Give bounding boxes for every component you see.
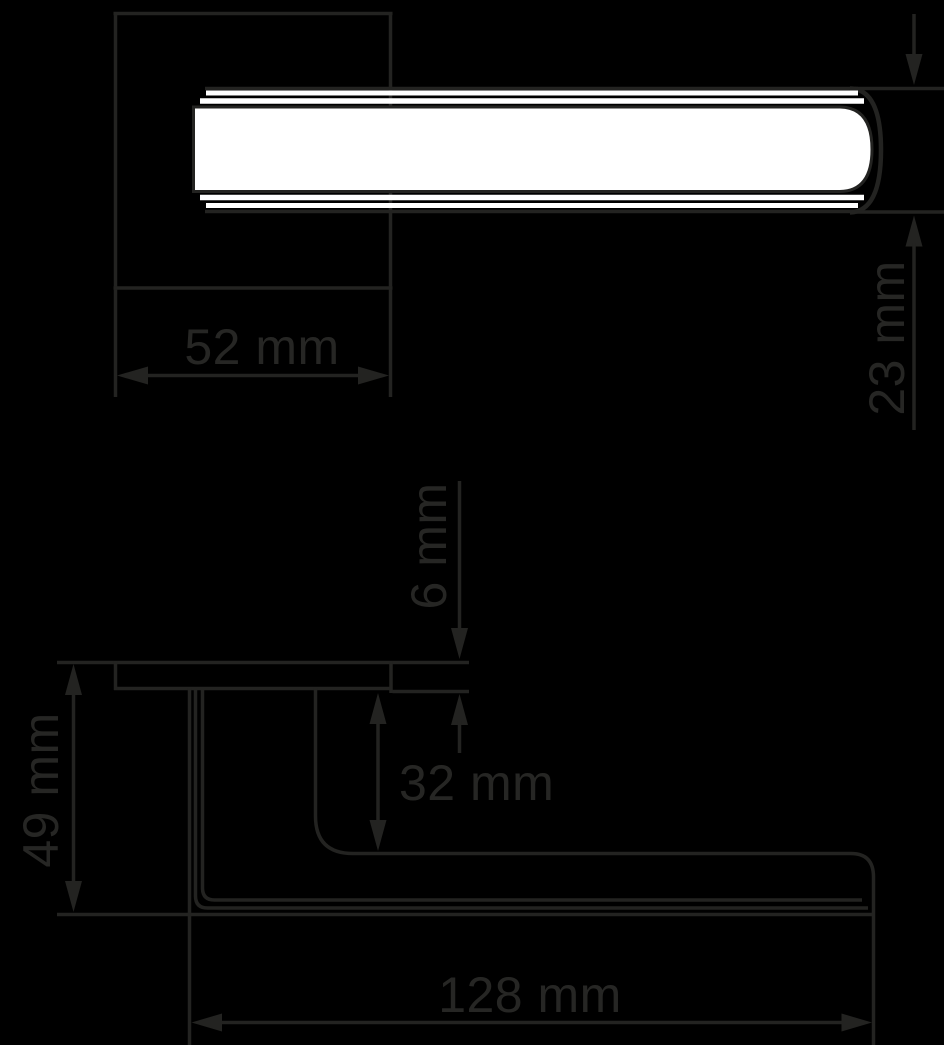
dim-6-label: 6 mm — [401, 483, 457, 610]
dim-32-label: 32 mm — [399, 755, 554, 811]
lever-top-view — [194, 89, 882, 213]
dim-49-arrow-up — [65, 664, 82, 695]
dimension-total-projection: 49 mm — [13, 664, 82, 912]
dim-52-arrow-left — [117, 367, 148, 385]
dim-23-label: 23 mm — [859, 260, 915, 415]
dim-49-label: 49 mm — [13, 712, 69, 867]
dim-52-arrow-right — [358, 367, 389, 385]
dim-6-arrow-up — [451, 694, 468, 725]
dim-49-arrow-down — [65, 881, 82, 912]
handle-technical-drawing: 52 mm 23 mm 6 mm 32 mm — [0, 0, 944, 1045]
lever-face — [194, 107, 873, 192]
dimension-rosette-width: 52 mm — [117, 319, 389, 385]
dim-128-arrow-right — [842, 1014, 873, 1032]
dim-32-arrow-up — [370, 693, 387, 724]
dim-128-arrow-left — [192, 1014, 223, 1032]
dimension-rosette-depth: 6 mm — [401, 481, 468, 753]
dim-128-label: 128 mm — [438, 967, 622, 1023]
dim-23-arrow-down — [906, 54, 923, 85]
dim-23-arrow-up — [906, 216, 923, 247]
dimension-lever-thickness: 23 mm — [855, 14, 944, 430]
dim-6-arrow-down — [451, 628, 468, 659]
dim-32-arrow-down — [370, 820, 387, 851]
dimension-lever-length: 128 mm — [192, 967, 873, 1032]
dim-52-label: 52 mm — [184, 319, 339, 375]
